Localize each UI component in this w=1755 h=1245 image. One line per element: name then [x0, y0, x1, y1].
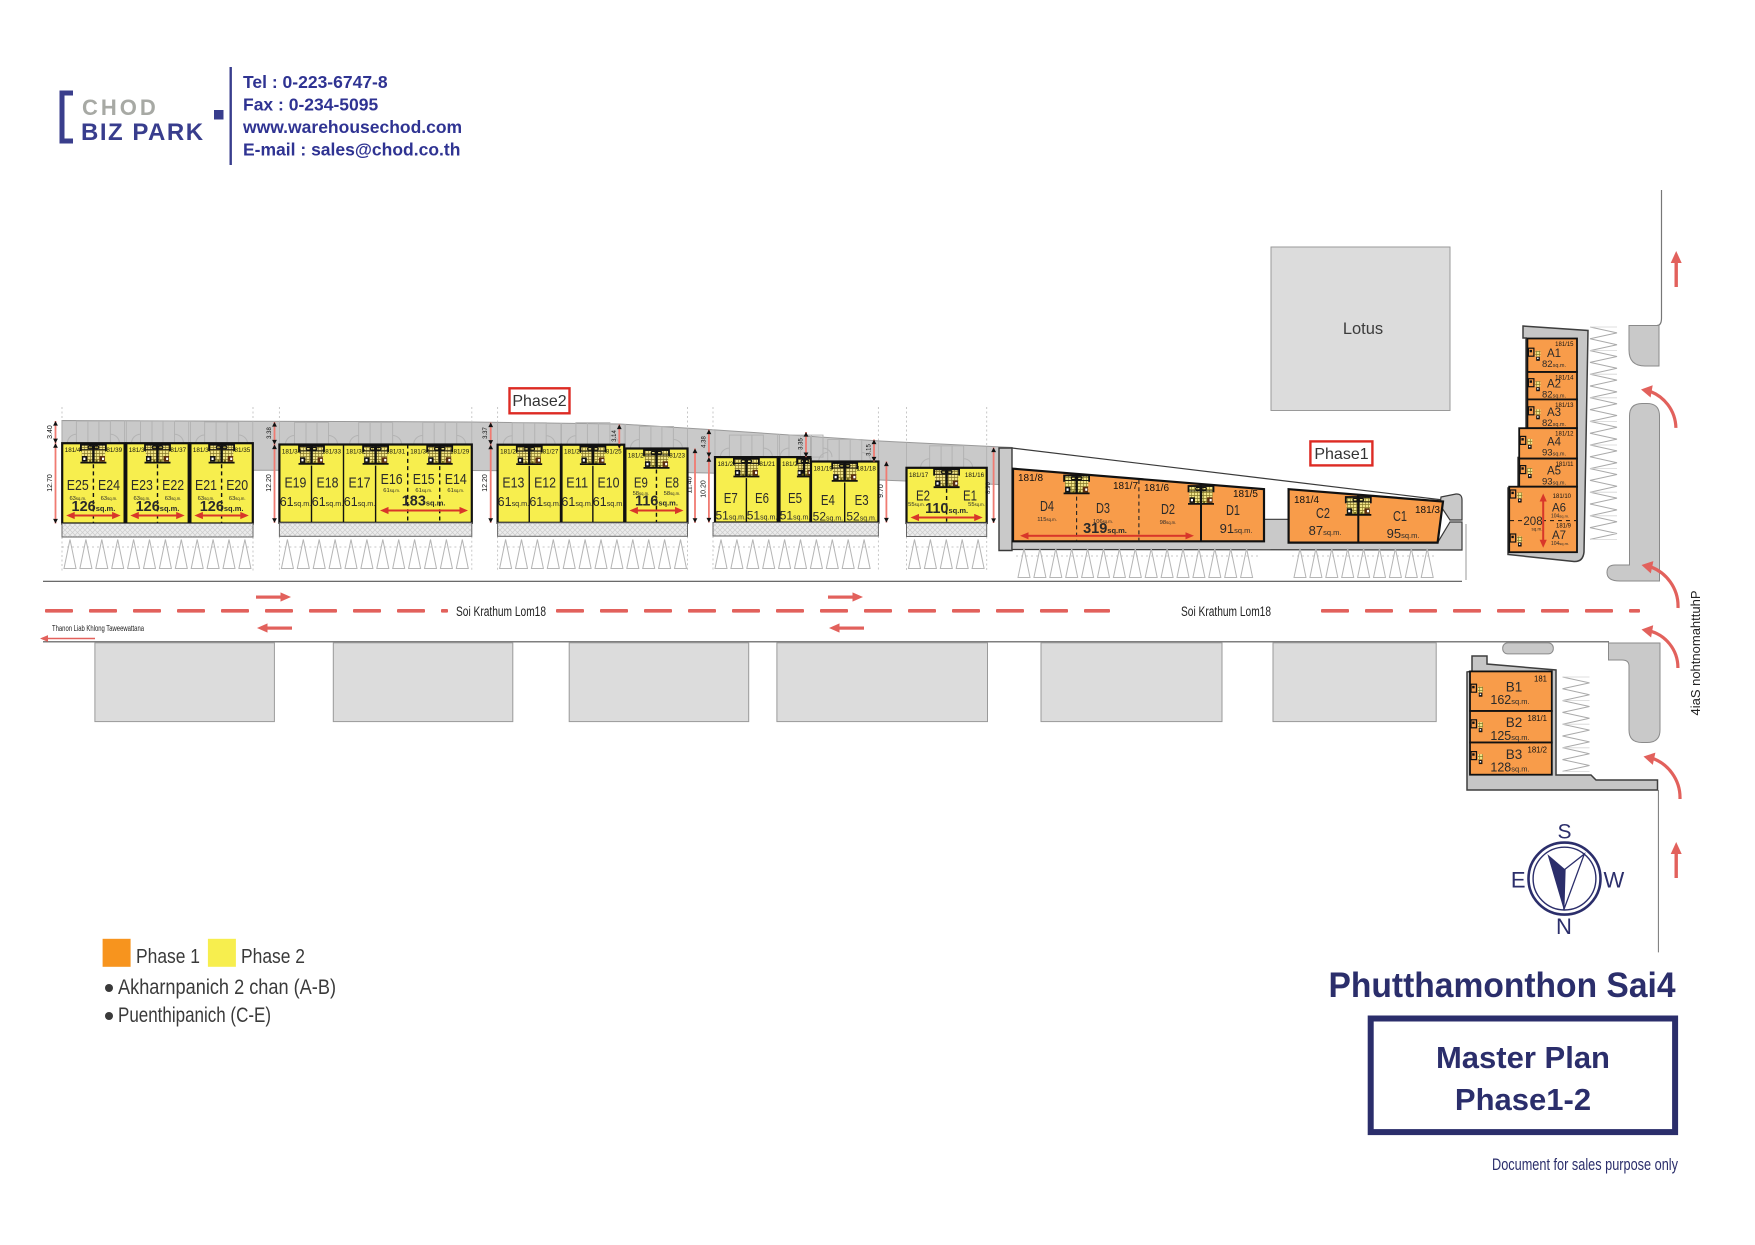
- svg-text:E15: E15: [413, 471, 435, 488]
- svg-text:181/29: 181/29: [450, 449, 470, 456]
- svg-text:E: E: [1511, 868, 1526, 893]
- svg-text:3.35: 3.35: [799, 438, 805, 450]
- svg-text:4.38: 4.38: [701, 436, 707, 448]
- svg-text:Document for sales purpose onl: Document for sales purpose only: [1492, 1155, 1678, 1174]
- svg-text:D1: D1: [1226, 502, 1240, 519]
- svg-text:E22: E22: [162, 477, 184, 494]
- svg-text:E25: E25: [67, 477, 89, 494]
- svg-text:181/34: 181/34: [282, 449, 302, 456]
- svg-text:Phutthamonthon Sai4: Phutthamonthon Sai4: [1329, 966, 1677, 1005]
- svg-text:181/32: 181/32: [346, 449, 366, 456]
- svg-text:181/16: 181/16: [965, 472, 985, 479]
- svg-text:181/1: 181/1: [1527, 714, 1547, 723]
- svg-text:3.38: 3.38: [267, 427, 273, 439]
- svg-text:E3: E3: [855, 492, 869, 509]
- svg-text:Phase1: Phase1: [1314, 446, 1368, 463]
- svg-text:D3: D3: [1096, 500, 1110, 517]
- svg-text:N: N: [1556, 914, 1572, 939]
- svg-text:181/2: 181/2: [1527, 746, 1547, 755]
- svg-text:E17: E17: [349, 475, 371, 492]
- svg-text:181/9: 181/9: [1556, 524, 1572, 530]
- svg-text:W: W: [1604, 868, 1625, 893]
- svg-text:Phase2: Phase2: [512, 393, 566, 410]
- svg-text:Phase1-2: Phase1-2: [1455, 1082, 1591, 1117]
- svg-text:E11: E11: [566, 475, 588, 492]
- svg-text:Puenthipanich (C-E): Puenthipanich (C-E): [118, 1004, 271, 1027]
- svg-text:E10: E10: [598, 475, 620, 492]
- svg-text:Phase 2: Phase 2: [241, 946, 305, 968]
- svg-text:S: S: [1557, 821, 1571, 844]
- svg-text:D4: D4: [1040, 498, 1054, 515]
- svg-text:E-mail : sales@chod.co.th: E-mail : sales@chod.co.th: [243, 140, 460, 160]
- svg-text:181/6: 181/6: [1144, 483, 1169, 494]
- svg-text:E23: E23: [131, 477, 153, 494]
- svg-text:CHOD: CHOD: [82, 95, 159, 120]
- svg-text:181/3: 181/3: [1415, 505, 1440, 516]
- svg-text:10.20: 10.20: [700, 480, 707, 498]
- svg-text:181/8: 181/8: [1018, 473, 1043, 484]
- svg-text:181: 181: [1534, 674, 1547, 683]
- svg-text:181/33: 181/33: [322, 449, 342, 456]
- svg-text:E5: E5: [788, 490, 802, 507]
- svg-text:E7: E7: [724, 490, 738, 507]
- svg-text:E9: E9: [634, 475, 648, 492]
- svg-text:181/19: 181/19: [814, 466, 834, 473]
- svg-text:12.70: 12.70: [47, 474, 54, 492]
- svg-text:4iaS nohtnomahttuhP: 4iaS nohtnomahttuhP: [1688, 590, 1703, 715]
- svg-text:E8: E8: [665, 475, 679, 492]
- svg-text:9.70: 9.70: [878, 484, 885, 498]
- svg-text:3.40: 3.40: [47, 425, 54, 439]
- svg-text:11.40: 11.40: [687, 476, 694, 493]
- svg-text:181/15: 181/15: [1555, 342, 1574, 348]
- svg-text:3.14: 3.14: [612, 430, 618, 442]
- svg-text:E24: E24: [98, 477, 120, 494]
- svg-text:E13: E13: [502, 475, 524, 492]
- svg-text:E12: E12: [534, 475, 556, 492]
- svg-text:181/17: 181/17: [909, 472, 929, 479]
- svg-text:181/10: 181/10: [1553, 494, 1572, 500]
- svg-text:181/5: 181/5: [1233, 489, 1258, 500]
- svg-text:Phase 1: Phase 1: [136, 946, 200, 968]
- svg-text:12.20: 12.20: [482, 474, 489, 492]
- svg-text:181/30: 181/30: [410, 449, 430, 456]
- svg-text:Tel : 0-223-6747-8: Tel : 0-223-6747-8: [243, 72, 388, 92]
- svg-text:E19: E19: [284, 475, 306, 492]
- svg-text:Soi Krathum Lom18: Soi Krathum Lom18: [1181, 604, 1271, 619]
- svg-text:E21: E21: [195, 477, 217, 494]
- svg-text:E18: E18: [317, 475, 339, 492]
- svg-text:E16: E16: [381, 471, 403, 488]
- svg-text:E20: E20: [226, 477, 248, 494]
- svg-text:D2: D2: [1161, 501, 1175, 518]
- svg-text:Akharnpanich 2 chan (A-B): Akharnpanich 2 chan (A-B): [118, 976, 336, 999]
- svg-text:181/31: 181/31: [386, 449, 406, 456]
- svg-text:12.20: 12.20: [266, 474, 273, 492]
- svg-text:181/7: 181/7: [1113, 481, 1138, 492]
- svg-text:Fax : 0-234-5095: Fax : 0-234-5095: [243, 95, 378, 115]
- svg-text:www.warehousechod.com: www.warehousechod.com: [242, 117, 462, 137]
- svg-text:E6: E6: [755, 490, 769, 507]
- svg-text:3.15: 3.15: [867, 444, 873, 456]
- svg-text:Master Plan: Master Plan: [1436, 1040, 1610, 1075]
- svg-text:E14: E14: [445, 471, 467, 488]
- svg-text:3.37: 3.37: [483, 427, 489, 439]
- svg-text:sq.m.: sq.m.: [1531, 527, 1542, 532]
- svg-text:BIZ PARK: BIZ PARK: [81, 119, 205, 146]
- svg-text:E4: E4: [821, 492, 835, 509]
- svg-text:Thanon Liab Khlong Taweewattan: Thanon Liab Khlong Taweewattana: [52, 623, 144, 633]
- svg-text:Soi Krathum Lom18: Soi Krathum Lom18: [456, 604, 546, 619]
- svg-text:C1: C1: [1393, 508, 1407, 525]
- svg-text:8.90: 8.90: [986, 482, 992, 494]
- svg-text:181/18: 181/18: [857, 466, 877, 473]
- svg-text:Lotus: Lotus: [1343, 320, 1383, 338]
- svg-text:C2: C2: [1316, 505, 1330, 522]
